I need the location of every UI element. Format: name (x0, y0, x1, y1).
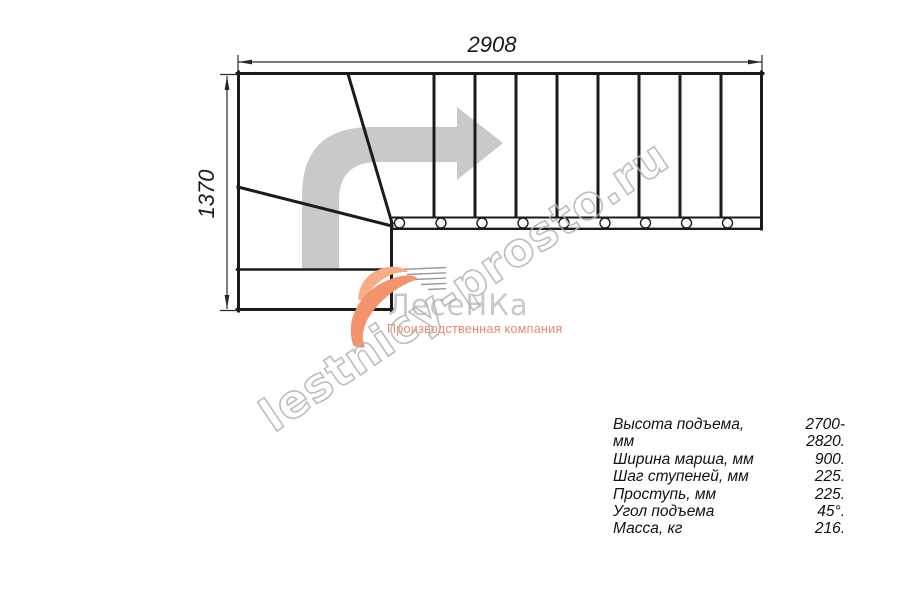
spec-value: 2700-2820. (768, 416, 845, 451)
spec-row: Проступь, мм 225. (613, 486, 845, 503)
logo-company-name: ЛесеНКа (388, 288, 529, 322)
spec-value: 45°. (817, 503, 845, 520)
spec-row: Высота подъема, мм 2700-2820. (613, 416, 845, 451)
spec-label: Масса, кг (613, 520, 682, 537)
stringer-band (392, 218, 763, 229)
spec-label: Высота подъема, мм (613, 416, 768, 451)
spec-value: 900. (815, 451, 845, 468)
spec-label: Ширина марша, мм (613, 451, 754, 468)
spec-row: Масса, кг 216. (613, 520, 845, 537)
specs-table: Высота подъема, мм 2700-2820. Ширина мар… (613, 416, 845, 538)
bolt-circles (395, 218, 733, 228)
spec-value: 216. (815, 520, 845, 537)
spec-row: Угол подъема 45°. (613, 503, 845, 520)
spec-label: Проступь, мм (613, 486, 716, 503)
dimension-height-label: 1370 (194, 149, 220, 239)
spec-row: Шаг ступеней, мм 225. (613, 468, 845, 485)
company-logo: ЛесеНКа Производственная компания (345, 255, 575, 350)
spec-value: 225. (815, 468, 845, 485)
spec-label: Угол подъема (613, 503, 714, 520)
dimension-height (220, 75, 237, 311)
direction-arrow (302, 107, 503, 269)
logo-tagline: Производственная компания (387, 322, 563, 336)
spec-row: Ширина марша, мм 900. (613, 451, 845, 468)
spec-value: 225. (815, 486, 845, 503)
dimension-width-label: 2908 (447, 32, 537, 58)
spec-label: Шаг ступеней, мм (613, 468, 749, 485)
